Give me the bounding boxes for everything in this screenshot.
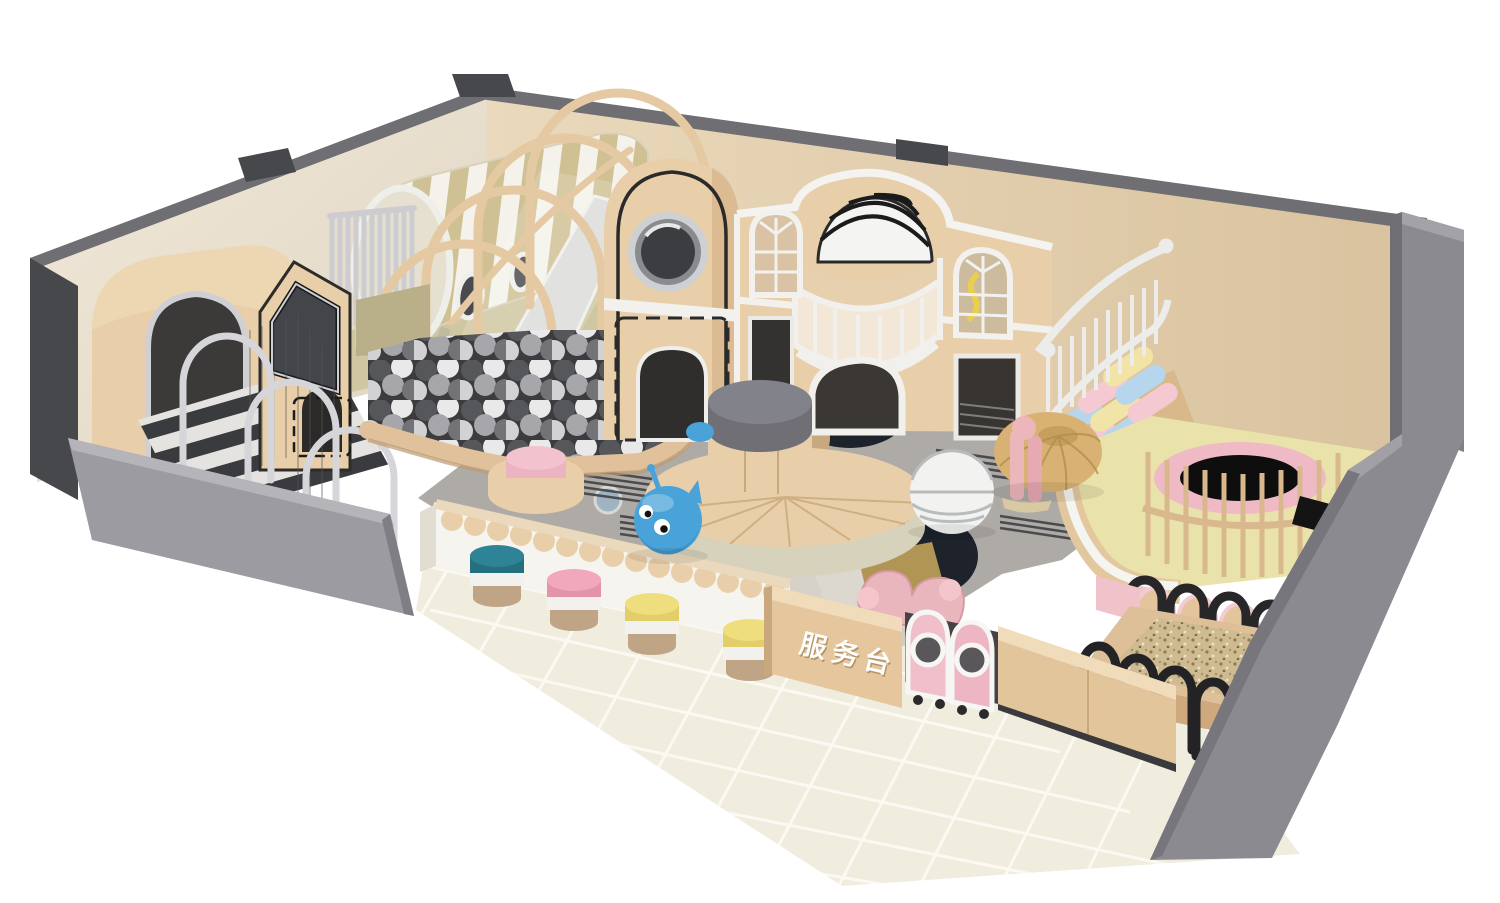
scene-canvas: 服务台 服务台 [0, 0, 1500, 903]
castle-arch-opening [812, 360, 902, 432]
castle-window-right [956, 250, 1010, 337]
gate-panel [952, 622, 992, 719]
gate-panel [908, 612, 948, 709]
left-wall-edge [30, 258, 78, 500]
wall-pillar-tab [452, 74, 516, 97]
gray-table-top [708, 380, 812, 424]
stool-teal [470, 545, 524, 607]
castle-window-left [752, 212, 800, 295]
stool-pink [547, 569, 601, 631]
striped-ball [910, 450, 994, 534]
pink-swing-gate [905, 612, 998, 719]
stool-yellow [625, 593, 679, 655]
playground-render: 服务台 服务台 [0, 0, 1500, 903]
